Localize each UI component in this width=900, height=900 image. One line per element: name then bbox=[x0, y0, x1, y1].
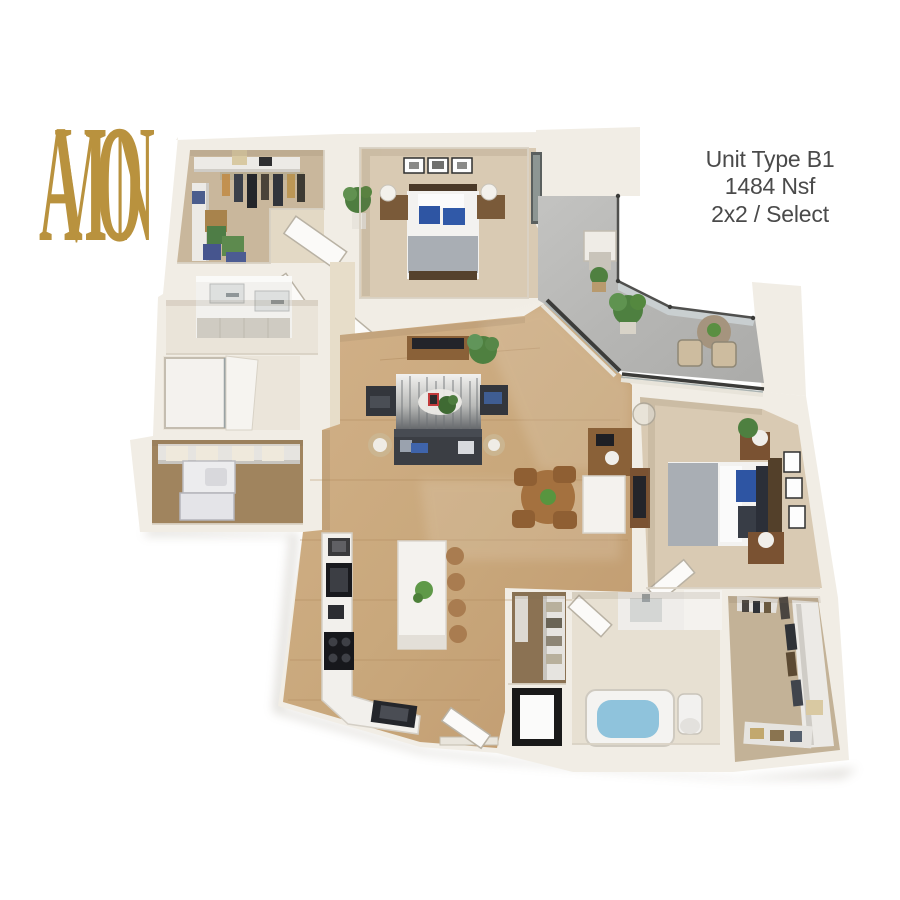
svg-text:N: N bbox=[112, 91, 156, 277]
